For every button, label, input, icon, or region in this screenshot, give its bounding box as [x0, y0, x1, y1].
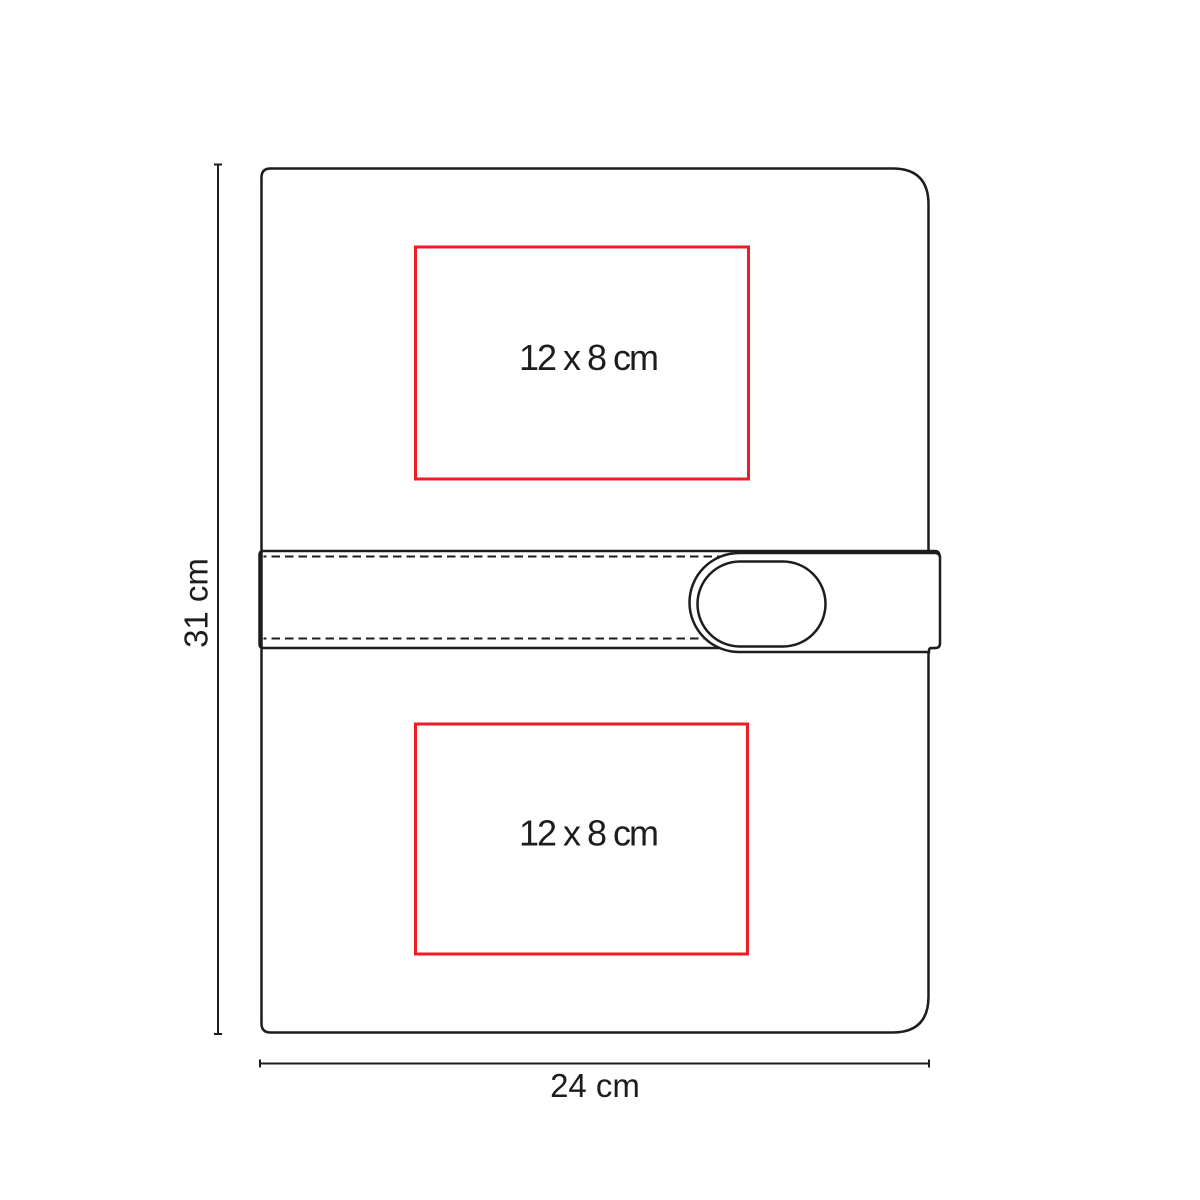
svg-text:12 x 8 cm: 12 x 8 cm	[519, 337, 657, 378]
svg-text:12 x 8 cm: 12 x 8 cm	[519, 813, 657, 854]
svg-text:31 cm: 31 cm	[178, 558, 215, 648]
svg-text:24 cm: 24 cm	[550, 1067, 640, 1104]
